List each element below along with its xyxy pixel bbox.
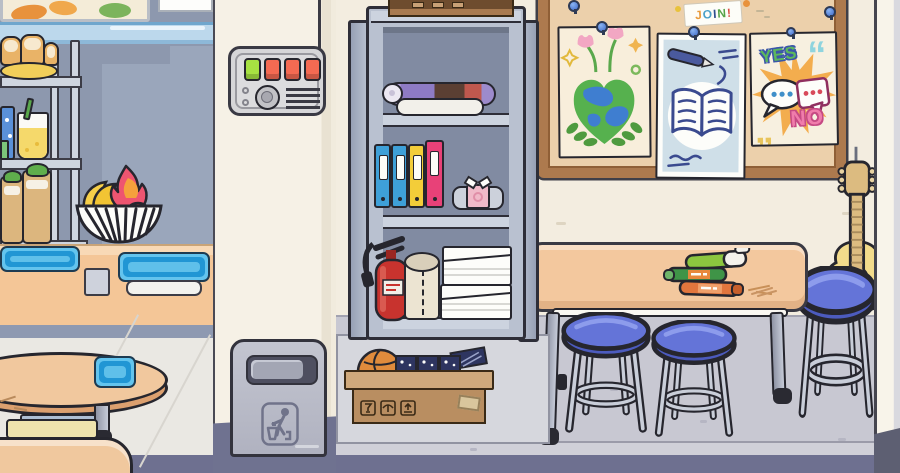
- this-side-up-icon: [404, 404, 412, 412]
- speaker-grille-line: [286, 106, 320, 109]
- paper-fold: [440, 292, 512, 301]
- speaker-grille-line: [286, 100, 320, 103]
- push-pin[interactable]: [688, 26, 700, 38]
- scene-school-room: “ „ YES NO J O I N !: [0, 0, 900, 473]
- earth-heart-poster[interactable]: [557, 26, 651, 159]
- extinguisher-handle: [376, 239, 402, 248]
- moving-box-body[interactable]: [352, 388, 486, 424]
- trash-slot-lid: [251, 360, 303, 379]
- paper-towel-roll[interactable]: [404, 258, 440, 320]
- cardboard-box-on-cabinet[interactable]: [388, 0, 514, 17]
- trash-slot[interactable]: [246, 355, 318, 385]
- board-mark: [756, 10, 764, 12]
- pen-cord: [717, 66, 725, 84]
- bread-loaf[interactable]: [43, 42, 59, 66]
- binder-hole: [398, 197, 402, 201]
- no-text: NO: [790, 106, 825, 132]
- box-flap: [412, 2, 424, 8]
- extinguisher-label: [383, 280, 403, 295]
- earth-heart-art: [559, 28, 648, 155]
- green-jar[interactable]: [0, 140, 9, 160]
- floor-speckle: [838, 438, 846, 441]
- paper-edge-line: [444, 274, 510, 276]
- rolled-screen[interactable]: [396, 98, 484, 116]
- tulip-flower: [578, 35, 594, 48]
- table-leg: [770, 312, 787, 396]
- box-flap: [432, 2, 444, 8]
- lemonade-pulp: [25, 148, 29, 152]
- pen-icon: [667, 48, 714, 69]
- cafeteria-wall-light-step: [170, 46, 213, 66]
- fragile-glass-icon: [365, 404, 371, 412]
- tray-base: [126, 280, 202, 296]
- picture-frame-piece: [158, 0, 213, 12]
- endcap-dot: [389, 90, 395, 96]
- panel-wire: [318, 0, 321, 48]
- confetti-dot: [675, 6, 681, 12]
- panel-button-red[interactable]: [284, 58, 301, 81]
- push-pin[interactable]: [568, 0, 580, 12]
- paper-fold: [442, 254, 512, 262]
- star-icon: [562, 50, 577, 65]
- paper-edge-line: [444, 268, 510, 270]
- binder-label: [396, 155, 405, 180]
- extinguisher-nozzle: [360, 271, 374, 288]
- panel-button-green[interactable]: [244, 58, 261, 81]
- push-pin[interactable]: [824, 6, 836, 18]
- join-letter: J: [695, 8, 703, 20]
- can-star-dot: [8, 134, 12, 138]
- lettuce-frill: [26, 163, 49, 177]
- binder[interactable]: [425, 140, 444, 208]
- wall-scuff: [556, 222, 566, 225]
- paper-stack[interactable]: [442, 246, 512, 286]
- moving-box-flap: [344, 370, 494, 390]
- counter-base-band: [0, 325, 213, 338]
- folded-shirt[interactable]: [452, 180, 504, 210]
- corner-table[interactable]: [0, 437, 133, 473]
- join-letter: O: [702, 8, 712, 21]
- flower-dot: [632, 66, 640, 74]
- picture-food-orange: [48, 0, 77, 16]
- blue-tray[interactable]: [0, 246, 80, 272]
- person-litter-icon: [261, 402, 299, 446]
- panel-button-red[interactable]: [264, 58, 281, 81]
- trash-can[interactable]: [230, 339, 327, 457]
- confetti-dot: [743, 0, 750, 7]
- push-pin[interactable]: [596, 21, 608, 33]
- stool[interactable]: [650, 320, 738, 440]
- star-icon: [628, 38, 643, 53]
- panel-button-red[interactable]: [304, 58, 321, 81]
- floor-edge-strip: [0, 455, 900, 473]
- picture-food-orange: [10, 3, 48, 22]
- box-bottom-band: [390, 9, 512, 15]
- binder[interactable]: [408, 144, 425, 208]
- right-baseboard: [874, 428, 900, 473]
- glass-rail-shine: [110, 26, 205, 30]
- green-marker: [664, 268, 726, 281]
- blue-tray[interactable]: [118, 252, 210, 282]
- binder-label: [413, 155, 422, 180]
- stool[interactable]: [560, 312, 652, 436]
- quote-mark: “: [807, 34, 827, 76]
- yellow-bench[interactable]: [6, 419, 98, 439]
- blue-tray[interactable]: [94, 356, 136, 388]
- lemonade-liquid: [19, 128, 47, 158]
- open-book-poster[interactable]: [655, 33, 746, 180]
- fruit-basket[interactable]: [74, 164, 164, 246]
- table-foot: [773, 388, 792, 404]
- orange-marker: [680, 281, 743, 296]
- tulip-flower: [607, 28, 623, 40]
- board-mark: [764, 16, 770, 18]
- join-letter: !: [727, 6, 732, 18]
- dial-knob[interactable]: [255, 85, 280, 110]
- binder-label: [430, 151, 439, 176]
- speaker-grille-line: [286, 88, 320, 91]
- binder[interactable]: [391, 144, 408, 208]
- indicator-light: [242, 99, 249, 106]
- yes-no-poster[interactable]: “ „ YES NO: [749, 31, 839, 147]
- green-pen: [685, 248, 750, 270]
- binder-label: [379, 155, 388, 180]
- dial-knob-inner: [261, 91, 273, 103]
- join-sign[interactable]: J O I N !: [683, 0, 742, 27]
- shirt-logo: [473, 192, 483, 202]
- can-star-dot: [5, 118, 9, 122]
- wrapped-sandwich[interactable]: [0, 176, 24, 244]
- right-pillar: [874, 0, 900, 473]
- table-markers[interactable]: [640, 248, 780, 300]
- lettuce-frill: [3, 170, 22, 183]
- open-book-art: [662, 40, 741, 175]
- binder-hole: [381, 197, 385, 201]
- control-panel[interactable]: [228, 46, 326, 116]
- book-right-page: [702, 90, 731, 136]
- push-pin[interactable]: [786, 27, 796, 37]
- box-flap: [452, 2, 464, 8]
- floor-speckle: [470, 448, 477, 451]
- guitar-headstock: [845, 162, 870, 196]
- book-left-page: [673, 89, 702, 135]
- join-letter: N: [717, 7, 726, 20]
- serving-plate[interactable]: [0, 62, 58, 80]
- indicator-light: [242, 87, 249, 94]
- wrapped-sandwich[interactable]: [22, 170, 52, 244]
- food-picture[interactable]: [0, 0, 150, 22]
- shipping-icons: [360, 400, 416, 416]
- paper-stack[interactable]: [440, 284, 512, 320]
- table-scratch-mark: [752, 288, 776, 296]
- cabinet-shelf-board: [383, 215, 509, 229]
- binder-hole: [433, 197, 437, 201]
- keep-dry-umbrella-icon: [383, 405, 393, 412]
- box-tape: [457, 395, 481, 412]
- lemonade-pulp: [35, 142, 39, 146]
- binder[interactable]: [374, 144, 391, 208]
- paper-edge-line: [442, 303, 510, 305]
- picture-food-green: [99, 3, 131, 18]
- lemonade-cup[interactable]: [17, 112, 49, 160]
- binder-hole: [415, 197, 419, 201]
- speaker-grille-line: [286, 94, 320, 97]
- shirt-bib: [466, 184, 490, 209]
- paper-edge-line: [442, 309, 510, 311]
- tray-stand: [84, 268, 110, 296]
- trash-shine: [295, 445, 319, 448]
